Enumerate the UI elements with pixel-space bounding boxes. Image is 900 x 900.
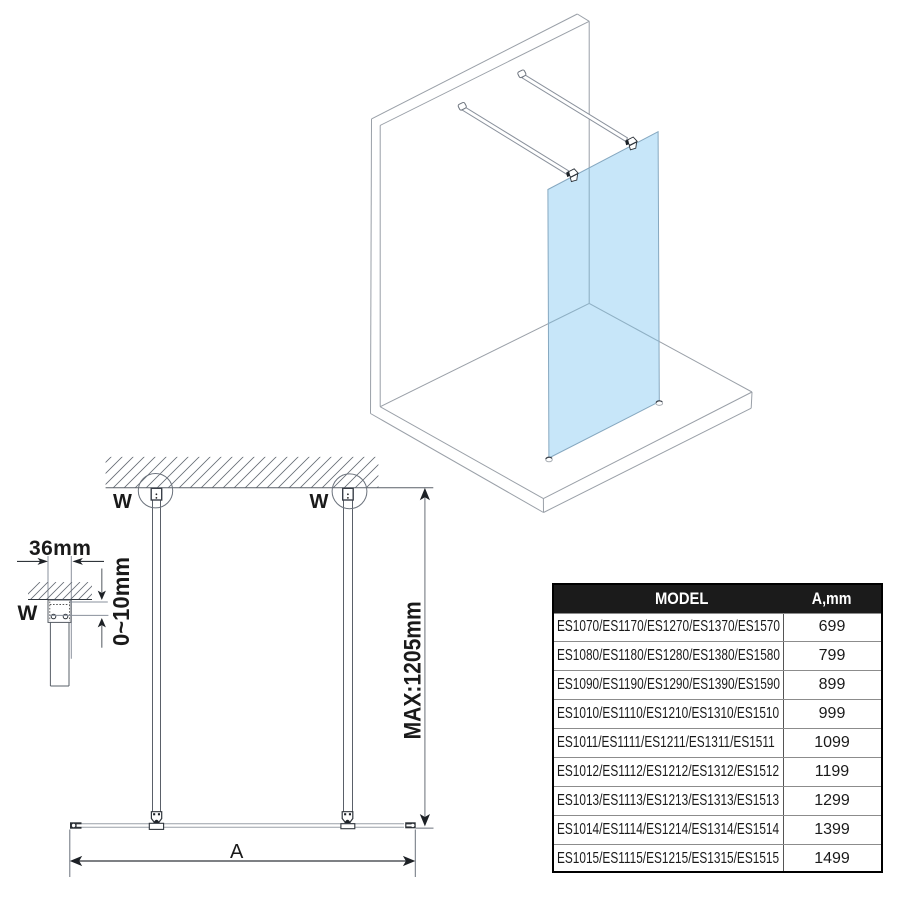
svg-text:0~10mm: 0~10mm: [109, 557, 135, 646]
svg-text:A: A: [230, 841, 244, 863]
svg-text:36mm: 36mm: [29, 537, 91, 560]
svg-text:W: W: [18, 602, 38, 625]
svg-text:W: W: [113, 491, 132, 513]
svg-text:W: W: [310, 491, 329, 513]
svg-text:MAX:1205mm: MAX:1205mm: [399, 601, 426, 739]
